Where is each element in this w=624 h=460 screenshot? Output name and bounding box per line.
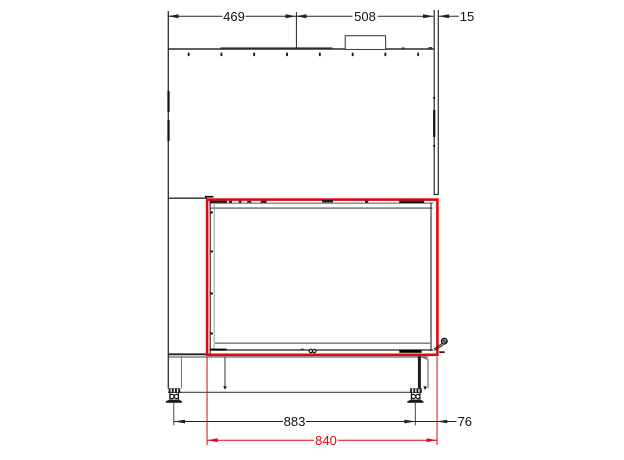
svg-text:15: 15 bbox=[460, 9, 474, 24]
svg-text:76: 76 bbox=[458, 414, 472, 429]
svg-text:840: 840 bbox=[315, 433, 337, 448]
svg-text:508: 508 bbox=[354, 9, 376, 24]
svg-text:883: 883 bbox=[284, 414, 306, 429]
svg-text:469: 469 bbox=[223, 9, 245, 24]
